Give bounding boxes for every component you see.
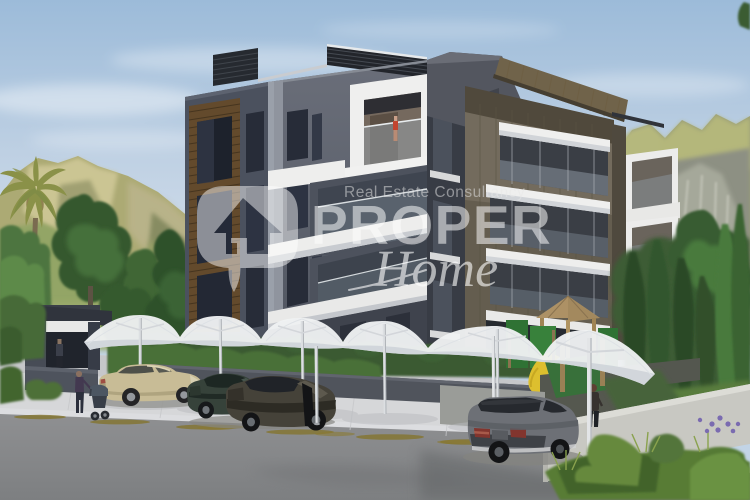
svg-text:Home: Home <box>373 241 498 298</box>
